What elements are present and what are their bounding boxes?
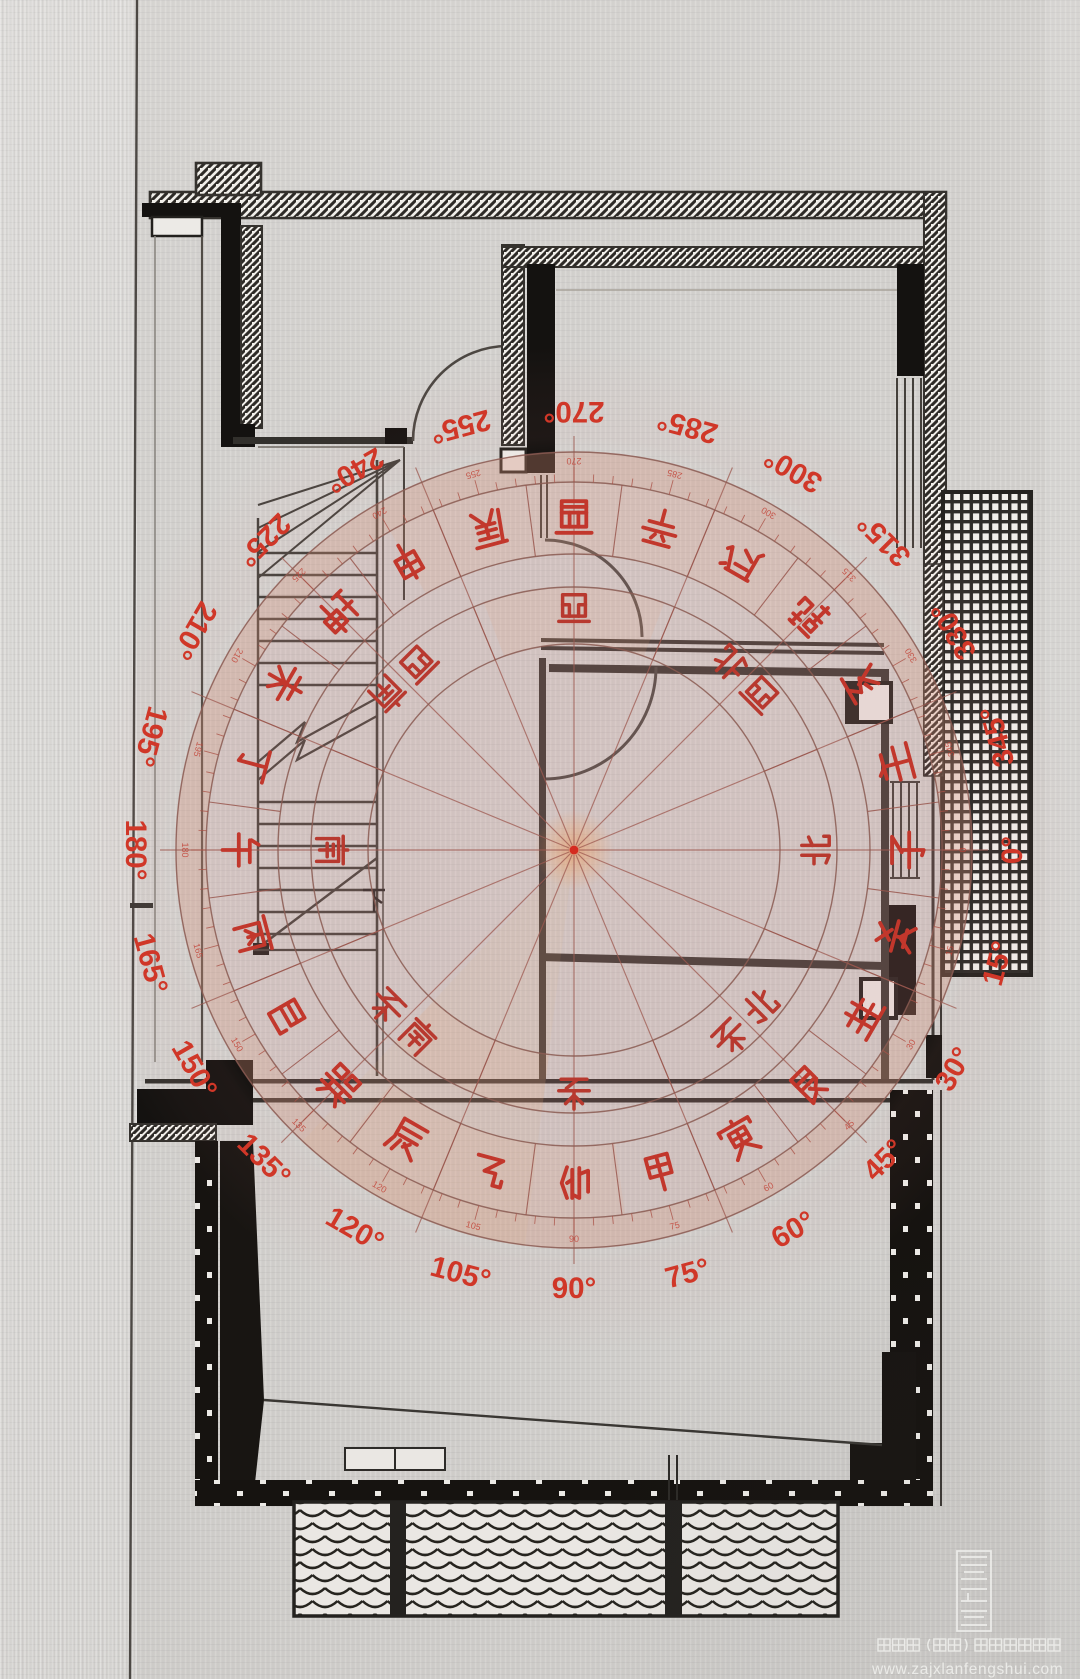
svg-text:90: 90 xyxy=(569,1234,579,1244)
svg-text:270: 270 xyxy=(566,456,581,466)
svg-text:www.zajxlanfengshui.com: www.zajxlanfengshui.com xyxy=(871,1661,1063,1678)
svg-text:270°: 270° xyxy=(543,395,604,428)
svg-text:180: 180 xyxy=(180,842,190,857)
svg-text:180°: 180° xyxy=(119,819,152,880)
svg-text:0°: 0° xyxy=(996,836,1029,864)
svg-text:0: 0 xyxy=(958,847,968,852)
svg-text:90°: 90° xyxy=(552,1272,597,1305)
